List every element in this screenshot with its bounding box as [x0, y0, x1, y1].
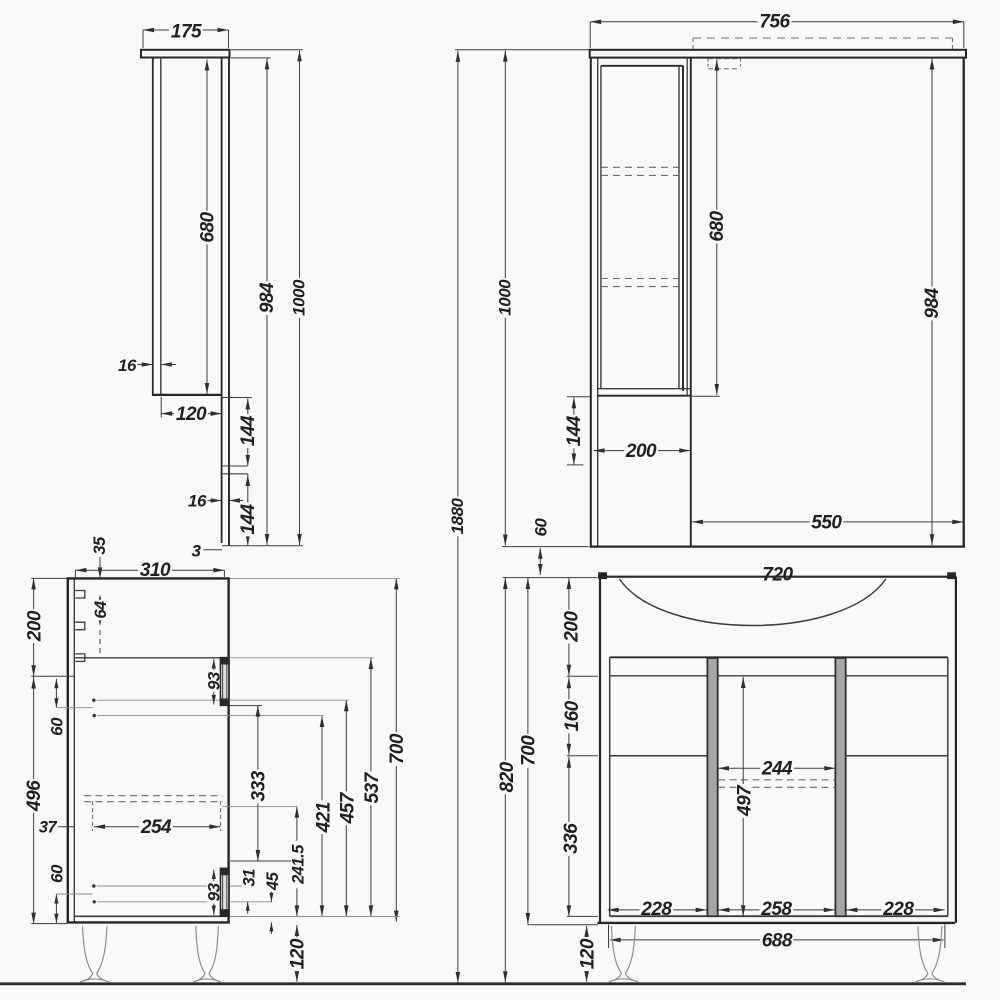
svg-text:228: 228 — [882, 899, 914, 920]
svg-text:421: 421 — [314, 802, 335, 833]
svg-text:200: 200 — [562, 611, 583, 643]
svg-text:93: 93 — [205, 671, 224, 690]
svg-text:228: 228 — [640, 899, 672, 920]
svg-text:144: 144 — [564, 415, 585, 446]
svg-text:200: 200 — [25, 610, 46, 642]
svg-text:120: 120 — [287, 938, 308, 969]
svg-text:984: 984 — [922, 287, 943, 318]
svg-text:37: 37 — [39, 819, 58, 837]
svg-text:64: 64 — [92, 601, 110, 619]
svg-text:700: 700 — [518, 735, 539, 766]
svg-text:1000: 1000 — [496, 279, 515, 316]
svg-text:200: 200 — [625, 441, 657, 462]
svg-text:254: 254 — [140, 817, 172, 838]
svg-text:457: 457 — [338, 791, 359, 824]
svg-text:336: 336 — [561, 823, 582, 854]
svg-text:60: 60 — [531, 518, 550, 537]
svg-text:45: 45 — [264, 871, 282, 891]
svg-text:333: 333 — [249, 770, 270, 801]
svg-text:1000: 1000 — [290, 279, 309, 316]
svg-text:144: 144 — [238, 415, 259, 446]
svg-text:688: 688 — [762, 930, 793, 951]
svg-text:60: 60 — [47, 717, 66, 736]
svg-text:120: 120 — [578, 938, 599, 969]
svg-text:244: 244 — [761, 759, 793, 780]
svg-text:310: 310 — [140, 560, 171, 581]
svg-text:756: 756 — [759, 12, 790, 33]
svg-text:3: 3 — [192, 542, 202, 561]
svg-text:720: 720 — [762, 564, 793, 585]
svg-text:680: 680 — [198, 211, 219, 242]
svg-text:258: 258 — [760, 899, 792, 920]
svg-text:93: 93 — [205, 882, 224, 901]
svg-text:680: 680 — [707, 210, 728, 241]
svg-text:144: 144 — [238, 503, 259, 534]
svg-text:60: 60 — [47, 864, 66, 883]
svg-text:16: 16 — [188, 492, 207, 511]
svg-text:160: 160 — [562, 700, 583, 731]
svg-text:497: 497 — [735, 784, 756, 817]
svg-text:496: 496 — [24, 780, 45, 812]
svg-text:120: 120 — [176, 404, 207, 425]
svg-text:984: 984 — [257, 282, 278, 313]
svg-text:700: 700 — [387, 733, 408, 764]
svg-text:31: 31 — [240, 869, 258, 887]
svg-text:550: 550 — [811, 512, 842, 533]
svg-text:241.5: 241.5 — [289, 844, 307, 885]
svg-text:820: 820 — [497, 761, 518, 792]
svg-text:1880: 1880 — [448, 497, 467, 534]
svg-text:16: 16 — [118, 356, 137, 375]
svg-text:537: 537 — [362, 771, 383, 803]
svg-text:175: 175 — [171, 21, 202, 42]
svg-text:35: 35 — [91, 536, 109, 555]
